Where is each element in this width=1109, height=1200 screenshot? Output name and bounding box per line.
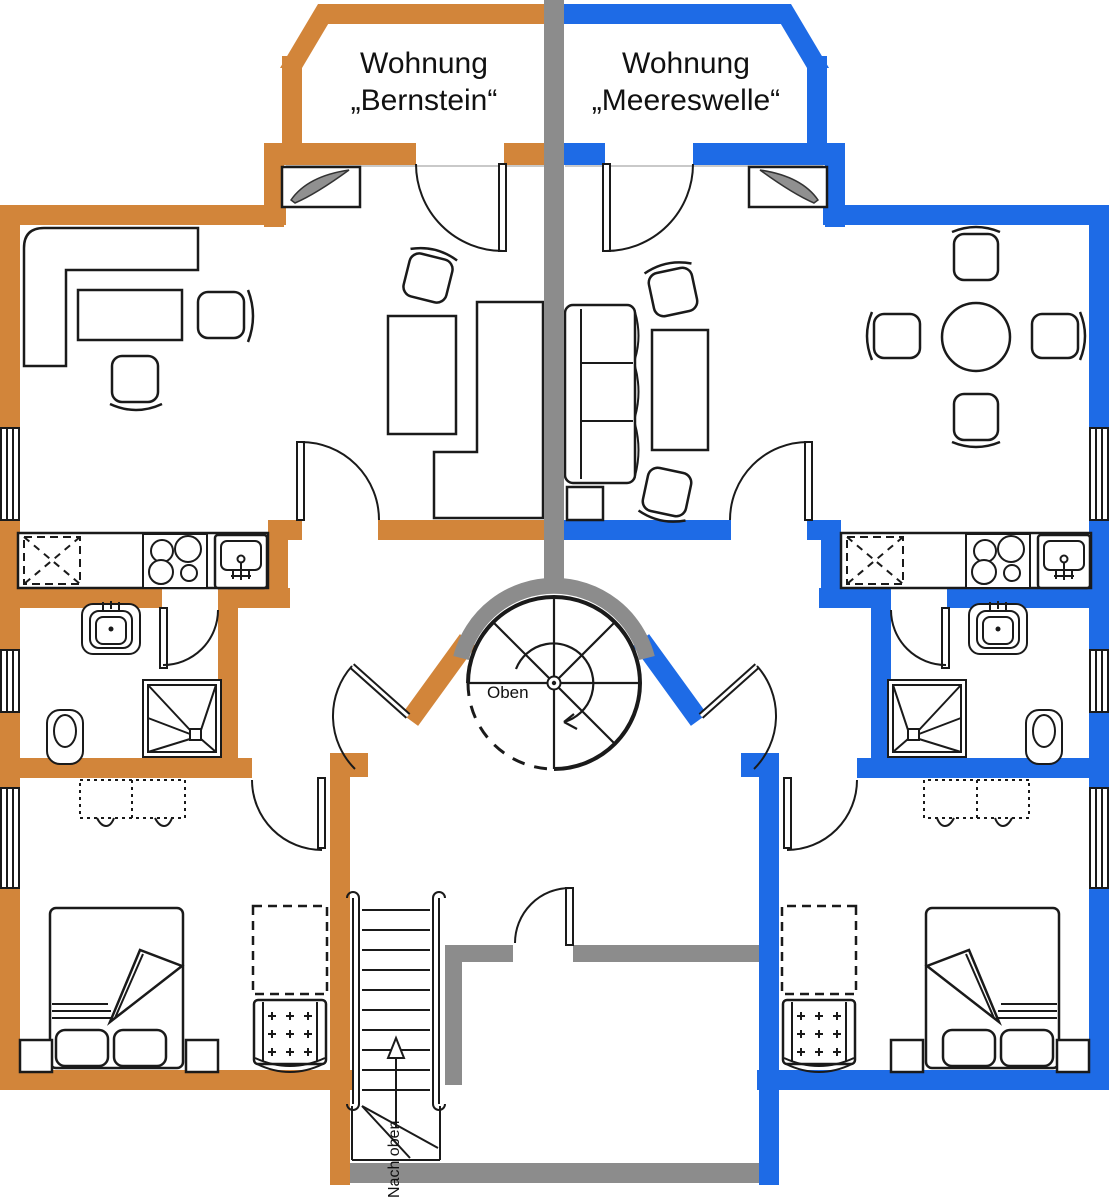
chair (399, 244, 458, 305)
side-table (567, 487, 603, 520)
label-apartment-bernstein: Wohnung (360, 47, 488, 80)
tv-sideboard (749, 167, 827, 207)
dining-chair (952, 394, 1000, 447)
chair (643, 259, 701, 319)
dining-chair (1032, 312, 1085, 360)
house-entrance-door (515, 888, 573, 945)
kitchen-meereswelle (847, 534, 1090, 588)
cushion-sofa (565, 305, 639, 483)
round-dining-table (942, 303, 1010, 371)
armchair (110, 356, 162, 410)
dining-chair (952, 227, 1000, 280)
tv-sideboard (282, 167, 360, 207)
center-party-wall (544, 0, 564, 592)
floor-plan-page: Wohnung „Bernstein“ Wohnung „Meereswelle… (0, 0, 1109, 1200)
floor-plan: Wohnung „Bernstein“ Wohnung „Meereswelle… (0, 0, 1109, 1200)
label-apartment-bernstein-name: „Bernstein“ (351, 84, 498, 117)
armchair (198, 290, 253, 342)
kitchen-bernstein (24, 534, 267, 588)
straight-staircase-up (347, 892, 445, 1160)
table (652, 330, 708, 450)
apartment-bernstein (0, 4, 548, 1185)
spiral-staircase (461, 586, 647, 769)
label-apartment-meereswelle: Wohnung (622, 47, 750, 80)
dining-chair (867, 312, 920, 360)
label-nach-oben: Nach oben (386, 1121, 403, 1198)
coffee-table (78, 290, 182, 340)
label-apartment-meereswelle-name: „Meereswelle“ (592, 84, 780, 117)
chair (637, 465, 695, 525)
table (388, 316, 456, 434)
label-spiral-stair-oben: Oben (487, 683, 529, 702)
up-arrow-head (388, 1038, 404, 1058)
apartment-meereswelle (561, 4, 1109, 1185)
